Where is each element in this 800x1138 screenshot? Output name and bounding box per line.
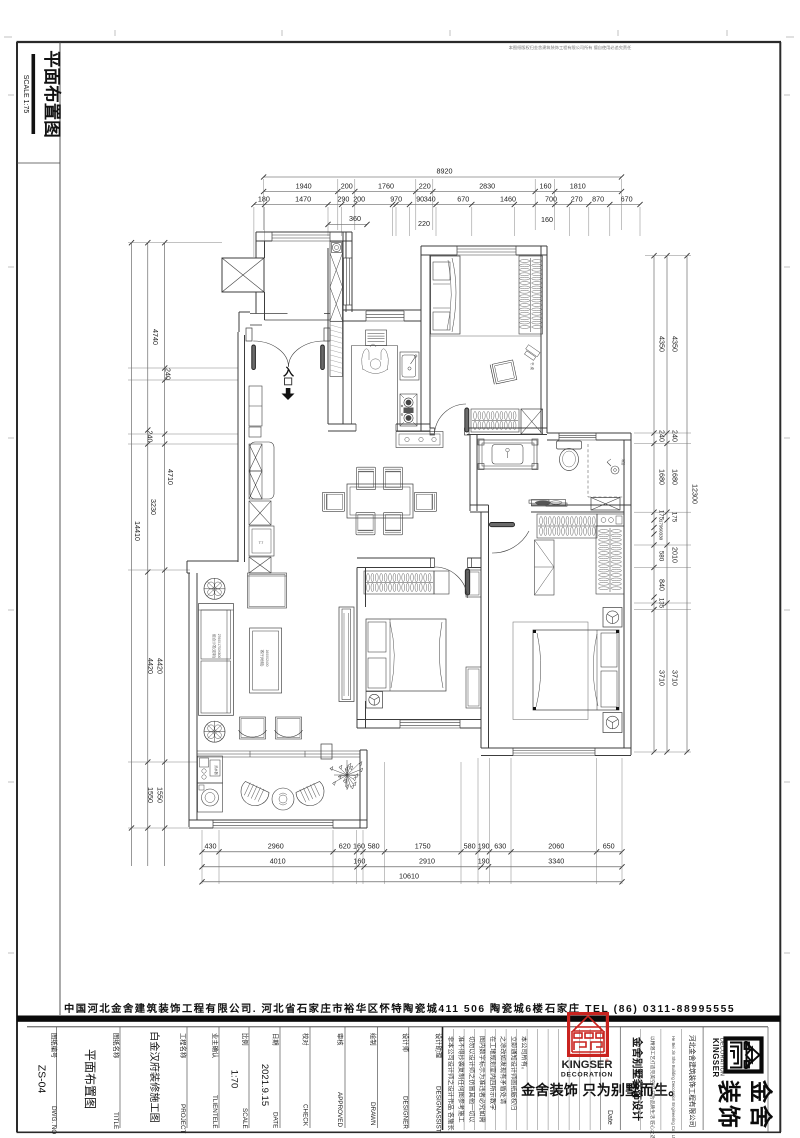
svg-text:1470: 1470 — [295, 194, 311, 203]
svg-text:160: 160 — [540, 181, 552, 190]
svg-text:T7: T7 — [259, 540, 264, 545]
svg-text:14410: 14410 — [133, 521, 142, 541]
svg-text:绘制: 绘制 — [369, 1033, 378, 1046]
svg-text:客厅(地毯): 客厅(地毯) — [260, 650, 265, 667]
svg-text:580: 580 — [368, 841, 380, 850]
svg-text:业主确认: 业主确认 — [211, 1033, 220, 1059]
svg-text:580: 580 — [464, 841, 476, 850]
svg-text:SCALE: SCALE — [241, 1108, 248, 1129]
svg-text:220: 220 — [419, 181, 431, 190]
svg-text:校对: 校对 — [302, 1033, 311, 1046]
svg-text:8920: 8920 — [437, 167, 453, 176]
svg-text:840: 840 — [658, 579, 667, 591]
svg-text:2760X1730X800: 2760X1730X800 — [217, 634, 221, 659]
svg-text:金舍装饰 只为别墅而生。: 金舍装饰 只为别墅而生。 — [520, 1082, 683, 1098]
svg-text:2010: 2010 — [671, 547, 680, 563]
svg-text:10610: 10610 — [399, 871, 419, 880]
svg-text:DWG. NO: DWG. NO — [50, 1106, 57, 1134]
svg-text:热水器: 热水器 — [214, 765, 219, 775]
svg-text:以精湛工艺打造完美空间 只为品质生活 匠心之选: 以精湛工艺打造完美空间 只为品质生活 匠心之选 — [649, 1036, 656, 1138]
svg-text:河北金舍建筑装饰工程有限公司: 河北金舍建筑装饰工程有限公司 — [688, 1035, 697, 1127]
svg-text:1550: 1550 — [156, 787, 165, 803]
svg-text:4420: 4420 — [156, 658, 165, 674]
svg-text:切勿以设计师之仿冒其他一切以: 切勿以设计师之仿冒其他一切以 — [468, 1036, 476, 1123]
svg-text:4010: 4010 — [270, 856, 286, 865]
svg-text:图内数字标示为准违者必究如需: 图内数字标示为准违者必究如需 — [478, 1036, 486, 1123]
svg-text:SCALE 1:75: SCALE 1:75 — [22, 75, 29, 114]
svg-text:135: 135 — [658, 598, 665, 609]
svg-text:准不得抄袭复制任何图参考施工: 准不得抄袭复制任何图参考施工 — [457, 1036, 465, 1123]
svg-text:240: 240 — [671, 430, 680, 442]
svg-text:设计师: 设计师 — [402, 1033, 411, 1052]
svg-text:240: 240 — [146, 431, 155, 443]
svg-text:日期: 日期 — [272, 1033, 280, 1046]
svg-text:2060: 2060 — [548, 841, 564, 850]
svg-text:入: 入 — [283, 366, 294, 379]
svg-text:970: 970 — [390, 194, 402, 203]
svg-text:12300: 12300 — [691, 484, 700, 504]
svg-text:1940: 1940 — [296, 181, 312, 190]
svg-text:1:70: 1:70 — [229, 1070, 240, 1089]
svg-text:4710: 4710 — [166, 469, 175, 485]
svg-text:270: 270 — [571, 194, 583, 203]
svg-text:430: 430 — [205, 841, 217, 850]
svg-text:平面布置图: 平面布置图 — [42, 50, 62, 138]
svg-text:2960: 2960 — [268, 841, 284, 850]
svg-text:870: 870 — [592, 194, 604, 203]
svg-text:组合沙发(定制): 组合沙发(定制) — [212, 634, 217, 658]
svg-text:650: 650 — [603, 841, 615, 850]
svg-text:2830: 2830 — [479, 181, 495, 190]
svg-text:240: 240 — [658, 430, 667, 442]
svg-text:非本公司设计师之设计作品 各施长: 非本公司设计师之设计作品 各施长 — [447, 1036, 455, 1131]
svg-text:DRAWN: DRAWN — [369, 1102, 376, 1126]
svg-text:图纸名称: 图纸名称 — [112, 1033, 121, 1059]
svg-text:240: 240 — [164, 368, 173, 380]
svg-text:淋浴: 淋浴 — [621, 459, 626, 466]
svg-text:620: 620 — [339, 841, 351, 850]
svg-text:670: 670 — [457, 194, 469, 203]
svg-text:之涂改如发现有矛盾处请: 之涂改如发现有矛盾处请 — [499, 1036, 507, 1104]
svg-text:670: 670 — [621, 194, 633, 203]
svg-text:金舍别墅装饰设计: 金舍别墅装饰设计 — [631, 1036, 644, 1121]
svg-text:DESIGNER: DESIGNER — [402, 1096, 409, 1129]
svg-text:1810: 1810 — [570, 181, 586, 190]
svg-text:金舍: 金舍 — [748, 1079, 774, 1130]
svg-text:DECORATION: DECORATION — [719, 1038, 725, 1076]
svg-text:图纸编号: 图纸编号 — [50, 1033, 59, 1058]
svg-text:TLIENTELE: TLIENTELE — [211, 1095, 218, 1129]
svg-text:1750: 1750 — [415, 841, 431, 850]
svg-text:TITLE: TITLE — [112, 1112, 119, 1129]
svg-text:2910: 2910 — [419, 856, 435, 865]
svg-text:180: 180 — [258, 194, 270, 203]
svg-text:本图纸版权归金舍建筑装饰工程有限公司所有 擅自使用必追究责任: 本图纸版权归金舍建筑装饰工程有限公司所有 擅自使用必追究责任 — [509, 44, 632, 51]
svg-text:175: 175 — [671, 512, 678, 523]
svg-text:1550: 1550 — [146, 787, 155, 803]
svg-text:He Bei Jin She Building Decora: He Bei Jin She Building Decoration Engin… — [670, 1036, 677, 1138]
svg-text:在工地规划室内四所示教字: 在工地规划室内四所示教字 — [489, 1036, 497, 1110]
svg-text:1600X2400: 1600X2400 — [265, 650, 269, 667]
svg-text:平面布置图: 平面布置图 — [83, 1049, 97, 1109]
svg-text:190: 190 — [478, 856, 490, 865]
svg-text:PROJECT: PROJECT — [179, 1104, 186, 1134]
svg-text:CHECK: CHECK — [302, 1104, 309, 1127]
svg-text:1760: 1760 — [378, 181, 394, 190]
svg-text:3710: 3710 — [671, 670, 680, 686]
svg-text:4420: 4420 — [146, 658, 155, 674]
svg-text:200: 200 — [341, 181, 353, 190]
svg-text:160: 160 — [541, 215, 553, 224]
svg-text:1680: 1680 — [671, 469, 680, 485]
svg-text:DATE: DATE — [272, 1112, 279, 1128]
svg-text:220: 220 — [418, 219, 430, 228]
svg-text:立即通知设计师图纸版权归: 立即通知设计师图纸版权归 — [510, 1036, 518, 1110]
svg-text:Date: Date — [606, 1110, 613, 1125]
svg-text:1680: 1680 — [658, 469, 667, 485]
svg-text:160: 160 — [353, 856, 365, 865]
svg-text:580: 580 — [658, 551, 665, 562]
svg-text:本公司所有。: 本公司所有。 — [520, 1036, 528, 1073]
svg-text:4350: 4350 — [658, 336, 667, 352]
svg-text:APPROVED: APPROVED — [336, 1092, 343, 1127]
svg-text:装饰: 装饰 — [716, 1080, 742, 1130]
svg-text:4350: 4350 — [671, 336, 680, 352]
svg-text:工程名称: 工程名称 — [179, 1033, 188, 1059]
svg-text:书 桌: 书 桌 — [530, 362, 535, 371]
svg-text:630: 630 — [494, 841, 506, 850]
svg-text:340: 340 — [424, 194, 436, 203]
svg-text:1460: 1460 — [500, 194, 516, 203]
svg-text:3340: 3340 — [548, 856, 564, 865]
svg-text:190: 190 — [478, 841, 490, 850]
svg-text:700: 700 — [545, 194, 557, 203]
svg-text:3710: 3710 — [658, 670, 667, 686]
svg-text:DECORATION: DECORATION — [561, 1072, 613, 1079]
svg-text:设计助理: 设计助理 — [435, 1033, 444, 1059]
svg-text:ZS-04: ZS-04 — [36, 1065, 48, 1094]
svg-text:17960330: 17960330 — [659, 520, 664, 541]
svg-text:2021.9.15: 2021.9.15 — [259, 1064, 270, 1106]
svg-text:比例: 比例 — [241, 1033, 250, 1046]
svg-text:290: 290 — [337, 194, 349, 203]
svg-text:中国河北金舍建筑装饰工程有限公司. 河北省石家庄市裕华区怀特: 中国河北金舍建筑装饰工程有限公司. 河北省石家庄市裕华区怀特陶瓷城411 506… — [64, 1002, 544, 1015]
svg-text:4740: 4740 — [151, 329, 160, 345]
svg-text:3230: 3230 — [149, 499, 158, 515]
svg-text:DESIGNASSIST: DESIGNASSIST — [435, 1086, 442, 1133]
svg-text:白金汉府装修施工图: 白金汉府装修施工图 — [148, 1031, 161, 1123]
svg-text:审核: 审核 — [336, 1033, 345, 1046]
